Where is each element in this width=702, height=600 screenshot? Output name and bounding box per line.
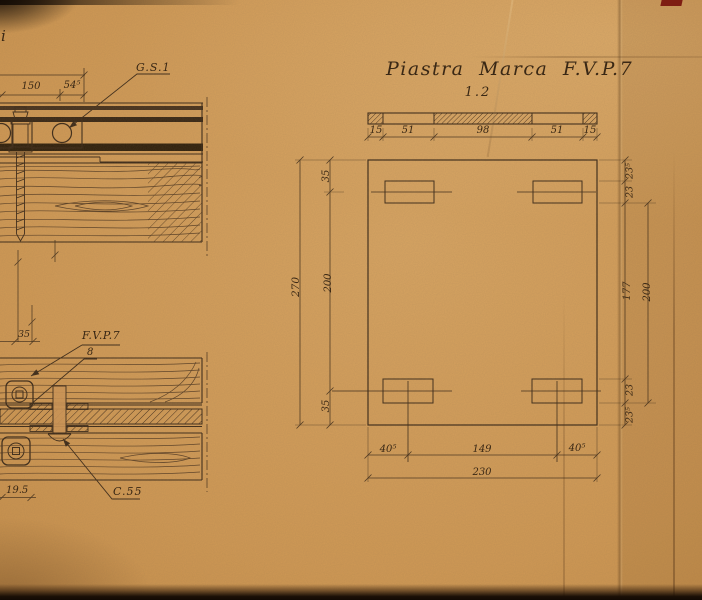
label-gs1: G.S.1 [136, 62, 171, 73]
dim-label-54-5: 54⁵ [64, 81, 81, 91]
label-c55: C.55 [113, 486, 143, 497]
dim-label-150: 150 [21, 82, 40, 92]
dim-label-right-23b: 23 [625, 384, 635, 396]
dim-label-right-23a: 23 [625, 186, 635, 198]
plate-title: Piastra Marca F.V.P.7 [386, 60, 633, 79]
label-fvp7: F.V.P.7 [82, 330, 120, 341]
dim-label-left-35bottom: 35 [322, 400, 332, 413]
corner-partial-text: i [1, 29, 6, 44]
dim-label-right-200: 200 [643, 282, 653, 301]
dim-label-right-235a: 23⁵ [625, 163, 635, 179]
paper-grain-texture [0, 0, 702, 600]
dim-label-405b: 40⁵ [569, 444, 586, 454]
dim-label-8: 8 [87, 348, 93, 358]
dim-label-left-200: 200 [324, 273, 334, 292]
blueprint-paper: i G.S.1 150 54⁵ F.V.P.7 8 35 C.55 19.5 P… [0, 0, 702, 600]
dim-label-top-15b: 15 [584, 126, 597, 136]
dim-label-top-15a: 15 [370, 126, 383, 136]
dim-label-405a: 40⁵ [380, 445, 397, 455]
dim-label-270: 270 [291, 277, 302, 297]
drawing-linework [0, 0, 702, 600]
dim-label-right-235b: 23⁵ [625, 407, 635, 423]
dim-label-149: 149 [472, 445, 491, 455]
dim-label-230: 230 [472, 468, 491, 478]
plate-scale-note: 1.2 [465, 86, 492, 99]
dim-label-top-98: 98 [477, 126, 490, 136]
dim-label-top-51b: 51 [551, 126, 564, 136]
dim-label-19-5: 19.5 [6, 486, 28, 496]
dim-label-right-177: 177 [623, 281, 633, 300]
dim-label-left-35top: 35 [322, 170, 332, 183]
dim-label-35-detail: 35 [18, 330, 30, 340]
dim-label-top-51a: 51 [402, 126, 415, 136]
